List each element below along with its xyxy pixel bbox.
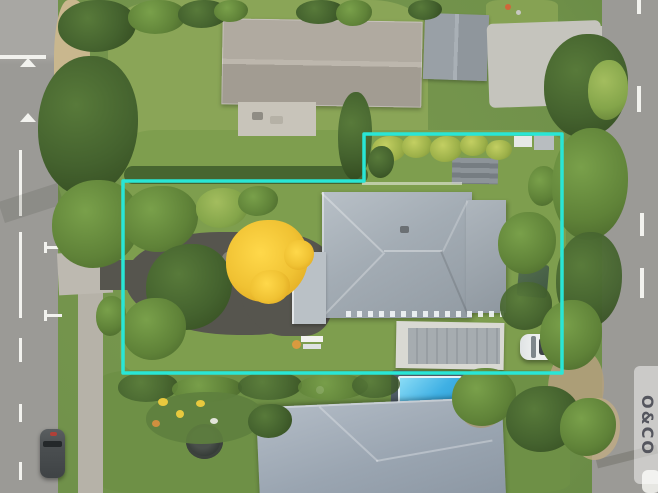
- aerial-photo: O&CO: [0, 0, 658, 493]
- watermark-text: O&CO: [638, 395, 657, 456]
- garden-stairs: [452, 158, 498, 185]
- car-windshield: [43, 441, 62, 447]
- patio-furniture: [252, 112, 263, 120]
- flower: [210, 418, 218, 424]
- parking-tee: [44, 310, 47, 321]
- garden-structure: [534, 134, 554, 150]
- hedge: [124, 166, 368, 184]
- steps: [303, 344, 321, 349]
- car-taillight: [50, 432, 57, 436]
- main-house-roof: [322, 192, 472, 318]
- car-windshield: [531, 336, 536, 358]
- neighbor-house-roof-top: [221, 18, 422, 107]
- garden-structure: [514, 136, 532, 147]
- flower: [176, 410, 184, 418]
- patio-furniture: [270, 116, 283, 124]
- car-dark: [40, 429, 65, 478]
- roof-vent: [400, 226, 409, 233]
- center-line-dash: [637, 86, 641, 112]
- center-line-dash: [640, 213, 644, 236]
- center-line-dash: [19, 462, 22, 480]
- flower: [152, 420, 160, 427]
- parking-tee: [44, 242, 47, 253]
- fence: [362, 182, 462, 185]
- flower: [158, 398, 168, 406]
- center-line-dash: [19, 404, 22, 422]
- roof-ridge: [384, 250, 442, 252]
- center-line-dash: [640, 268, 644, 298]
- toy: [516, 10, 521, 15]
- roof-scallop-edge: [346, 311, 504, 317]
- outbuilding-roof: [423, 13, 489, 81]
- watermark: O&CO: [634, 366, 658, 484]
- give-way-triangle: [20, 58, 36, 67]
- toy: [505, 4, 511, 10]
- center-line-dash: [19, 232, 22, 318]
- give-way-triangle: [20, 113, 36, 122]
- center-line-dash: [637, 0, 641, 14]
- steps: [301, 336, 323, 342]
- center-line-dash: [19, 338, 22, 362]
- flower: [292, 340, 301, 349]
- flower: [196, 400, 205, 407]
- garage-roof: [408, 328, 500, 364]
